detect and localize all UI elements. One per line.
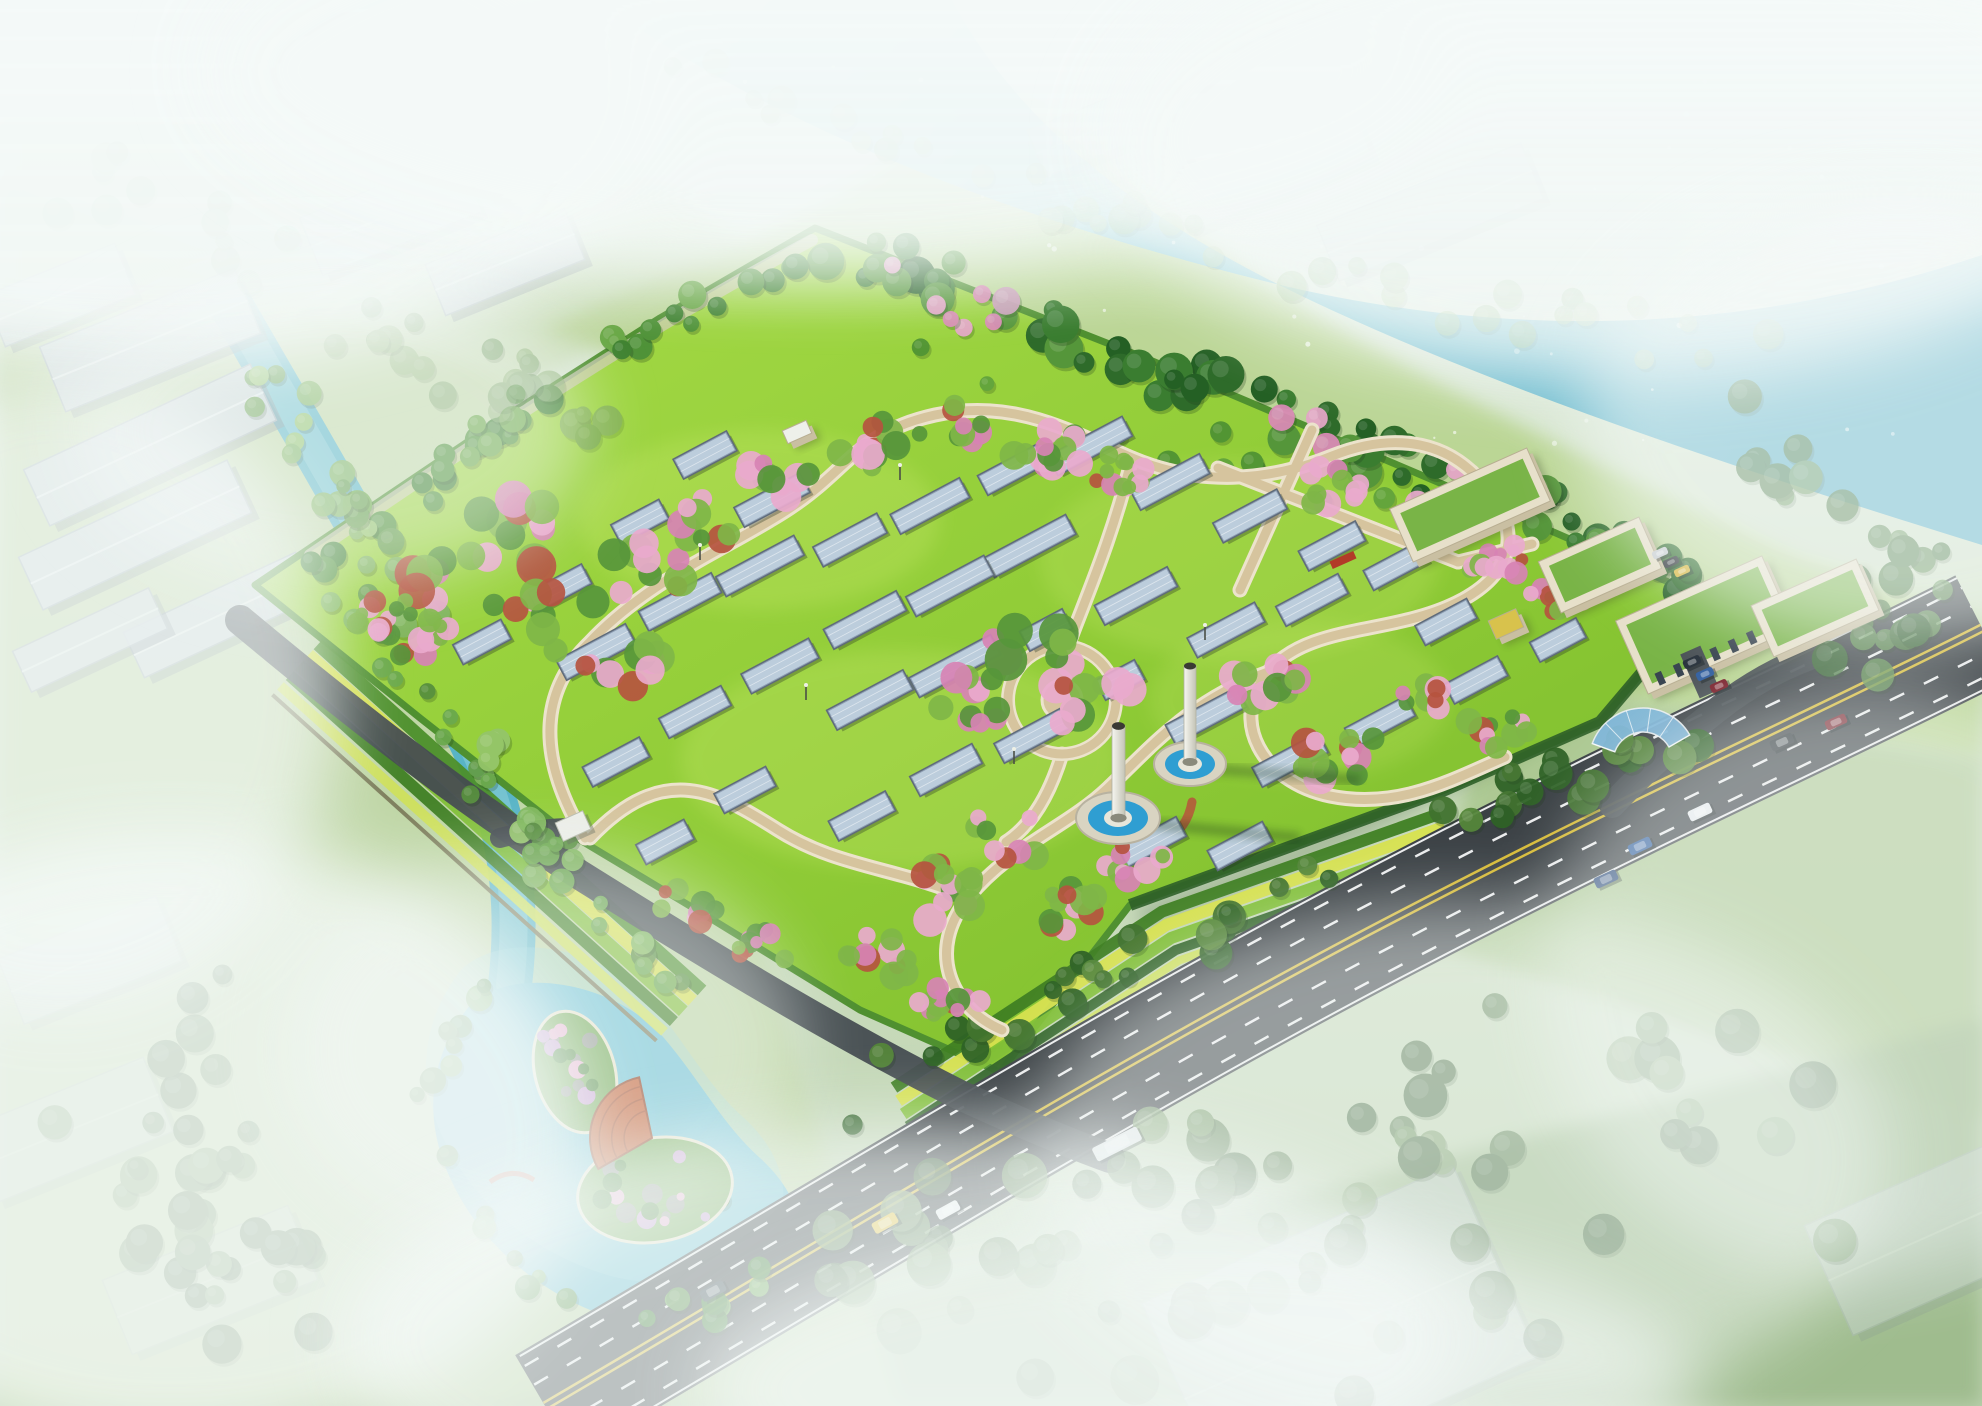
shrub xyxy=(1000,441,1029,470)
river-sparkle xyxy=(1453,431,1456,434)
shrub xyxy=(1523,586,1539,602)
shrub xyxy=(1115,453,1132,470)
shrub xyxy=(543,638,567,662)
shrub xyxy=(1113,673,1147,707)
shrub xyxy=(1507,545,1519,557)
shrub xyxy=(483,594,505,616)
tree-highlight xyxy=(914,341,922,349)
tree-highlight xyxy=(1504,765,1513,774)
shrub xyxy=(537,578,565,606)
shrub xyxy=(926,1006,941,1021)
tree-highlight xyxy=(1097,973,1105,981)
shrub xyxy=(1156,849,1171,864)
shrub xyxy=(1058,885,1077,904)
river-sparkle xyxy=(1433,437,1435,439)
tree-highlight xyxy=(375,660,384,669)
shrub xyxy=(911,861,938,888)
tree-highlight xyxy=(1254,379,1266,391)
shrub xyxy=(1060,697,1086,723)
shrub xyxy=(418,609,442,633)
tree-highlight xyxy=(389,673,396,680)
tree-highlight xyxy=(872,1046,883,1057)
tree-highlight xyxy=(550,839,557,846)
shrub xyxy=(368,618,390,640)
shrub xyxy=(1306,732,1325,751)
lamp-head xyxy=(698,543,702,547)
shrub xyxy=(881,431,910,460)
shrub xyxy=(633,545,661,573)
shrub xyxy=(610,581,633,604)
stack-top xyxy=(1184,662,1196,669)
tree-highlight xyxy=(981,378,988,385)
tree-highlight xyxy=(481,753,491,763)
shrub xyxy=(928,695,953,720)
park-aerial-rendering xyxy=(0,0,1982,1406)
tree-highlight xyxy=(1569,535,1577,543)
tree-highlight xyxy=(1008,1023,1022,1037)
tree-highlight xyxy=(1121,970,1129,978)
shrub xyxy=(678,498,697,517)
tree-highlight xyxy=(925,1049,934,1058)
shrub xyxy=(635,655,664,684)
tree-highlight xyxy=(444,711,451,718)
shrub xyxy=(940,662,972,694)
shrub xyxy=(1300,462,1322,484)
tree-highlight xyxy=(480,734,492,746)
tree-highlight xyxy=(527,825,535,833)
shrub xyxy=(575,656,595,676)
tree-highlight xyxy=(464,788,472,796)
shrub xyxy=(718,523,741,546)
shrub xyxy=(879,962,908,991)
shrub xyxy=(944,395,965,416)
shrub xyxy=(403,607,418,622)
shrub xyxy=(863,417,884,438)
shrub xyxy=(1427,679,1445,697)
shrub xyxy=(1066,450,1093,477)
tree-highlight xyxy=(596,409,610,423)
tree-highlight xyxy=(1300,858,1309,867)
shrub xyxy=(1339,729,1359,749)
shrub xyxy=(1133,857,1160,884)
tree-highlight xyxy=(1279,392,1288,401)
shrub xyxy=(1504,561,1527,584)
shrub xyxy=(1301,491,1325,515)
tree-highlight xyxy=(1499,794,1511,806)
shrub xyxy=(955,418,972,435)
river-sparkle xyxy=(1552,441,1557,446)
shrub xyxy=(880,928,902,950)
tree-highlight xyxy=(615,342,624,351)
shrub xyxy=(854,439,885,470)
tree-highlight xyxy=(1212,361,1229,378)
shrub xyxy=(970,713,990,733)
tree-highlight xyxy=(1272,880,1281,889)
shrub xyxy=(1456,708,1483,735)
tree-highlight xyxy=(1109,339,1120,350)
shrub xyxy=(1341,747,1359,765)
shrub xyxy=(858,927,875,944)
tree-highlight xyxy=(1127,354,1142,369)
shrub xyxy=(598,538,631,571)
shrub xyxy=(1054,676,1073,695)
shrub xyxy=(1100,464,1115,479)
tree-highlight xyxy=(1520,782,1532,794)
shrub xyxy=(1516,721,1537,742)
shrub xyxy=(1113,478,1132,497)
shrub xyxy=(1284,669,1305,690)
tree-highlight xyxy=(1121,928,1135,942)
shrub xyxy=(950,1003,964,1017)
shrub xyxy=(977,821,997,841)
tree-highlight xyxy=(1244,454,1254,464)
tree-highlight xyxy=(1167,372,1176,381)
tree-highlight xyxy=(483,775,490,782)
shrub xyxy=(1232,661,1258,687)
shrub xyxy=(1362,727,1385,750)
stack-top xyxy=(1112,722,1125,730)
shrub xyxy=(1022,810,1038,826)
fog-cloud xyxy=(70,270,590,590)
tree-highlight xyxy=(1200,923,1214,937)
shrub xyxy=(1485,736,1508,759)
tree-highlight xyxy=(1058,969,1067,978)
shrub xyxy=(1049,629,1076,656)
shrub xyxy=(775,950,794,969)
tree-highlight xyxy=(421,685,428,692)
tree-highlight xyxy=(1322,872,1330,880)
tree-highlight xyxy=(1147,384,1161,398)
tree-highlight xyxy=(1309,410,1319,420)
stack-base xyxy=(1183,758,1198,766)
shrub xyxy=(927,977,949,999)
shrub xyxy=(827,439,854,466)
shrub xyxy=(390,645,411,666)
tree-highlight xyxy=(1076,355,1085,364)
tree-highlight xyxy=(1084,962,1094,972)
shrub xyxy=(1035,437,1054,456)
lamp-head xyxy=(898,463,902,467)
shrub xyxy=(839,946,859,966)
river-sparkle xyxy=(1305,342,1310,347)
tree-highlight xyxy=(1046,983,1054,991)
shrub xyxy=(1345,480,1367,502)
tree-highlight xyxy=(1865,663,1880,678)
tree-highlight xyxy=(1316,436,1328,448)
tree-highlight xyxy=(1580,773,1595,788)
tree-highlight xyxy=(1061,992,1074,1005)
shrub xyxy=(933,892,953,912)
shrub xyxy=(667,548,689,570)
shrub xyxy=(757,465,785,493)
aerial-rendering-stage xyxy=(0,0,1982,1406)
tree-highlight xyxy=(1272,408,1284,420)
tree-highlight xyxy=(1395,470,1403,478)
shrub xyxy=(576,585,609,618)
shrub xyxy=(984,840,1005,861)
tree-highlight xyxy=(1221,906,1231,916)
shrub xyxy=(1485,556,1508,579)
shrub xyxy=(909,992,929,1012)
shrub xyxy=(969,990,991,1012)
shrub xyxy=(1039,909,1064,934)
shrub xyxy=(912,426,928,442)
lamp-head xyxy=(1203,623,1207,627)
lamp-head xyxy=(1012,747,1016,751)
tree-highlight xyxy=(1432,800,1445,813)
shrub xyxy=(355,608,368,621)
shrub xyxy=(981,668,1003,690)
tree-highlight xyxy=(1565,515,1573,523)
stack-base xyxy=(1110,814,1126,823)
tree-highlight xyxy=(437,731,445,739)
tree-highlight xyxy=(948,1018,960,1030)
shrub xyxy=(954,890,985,921)
tree-highlight xyxy=(1543,761,1558,776)
shrub xyxy=(934,864,955,885)
shrub xyxy=(1227,685,1247,705)
lamp-head xyxy=(804,683,808,687)
stack-cylinder xyxy=(1112,726,1125,818)
tree-highlight xyxy=(1184,377,1197,390)
shrub xyxy=(797,463,820,486)
shrub xyxy=(760,923,781,944)
shrub xyxy=(389,601,405,617)
stack-cylinder xyxy=(1184,666,1196,762)
tree-highlight xyxy=(1376,490,1386,500)
shrub xyxy=(364,590,387,613)
tree-highlight xyxy=(470,762,478,770)
tree-highlight xyxy=(1358,421,1367,430)
tree-highlight xyxy=(1073,954,1084,965)
shrub xyxy=(1505,709,1520,724)
tree-highlight xyxy=(1213,424,1223,434)
tree-highlight xyxy=(1493,807,1504,818)
tree-highlight xyxy=(1109,358,1123,372)
shrub xyxy=(972,415,990,433)
tree-highlight xyxy=(1462,811,1473,822)
shrub xyxy=(1395,686,1410,701)
shrub xyxy=(960,867,983,890)
